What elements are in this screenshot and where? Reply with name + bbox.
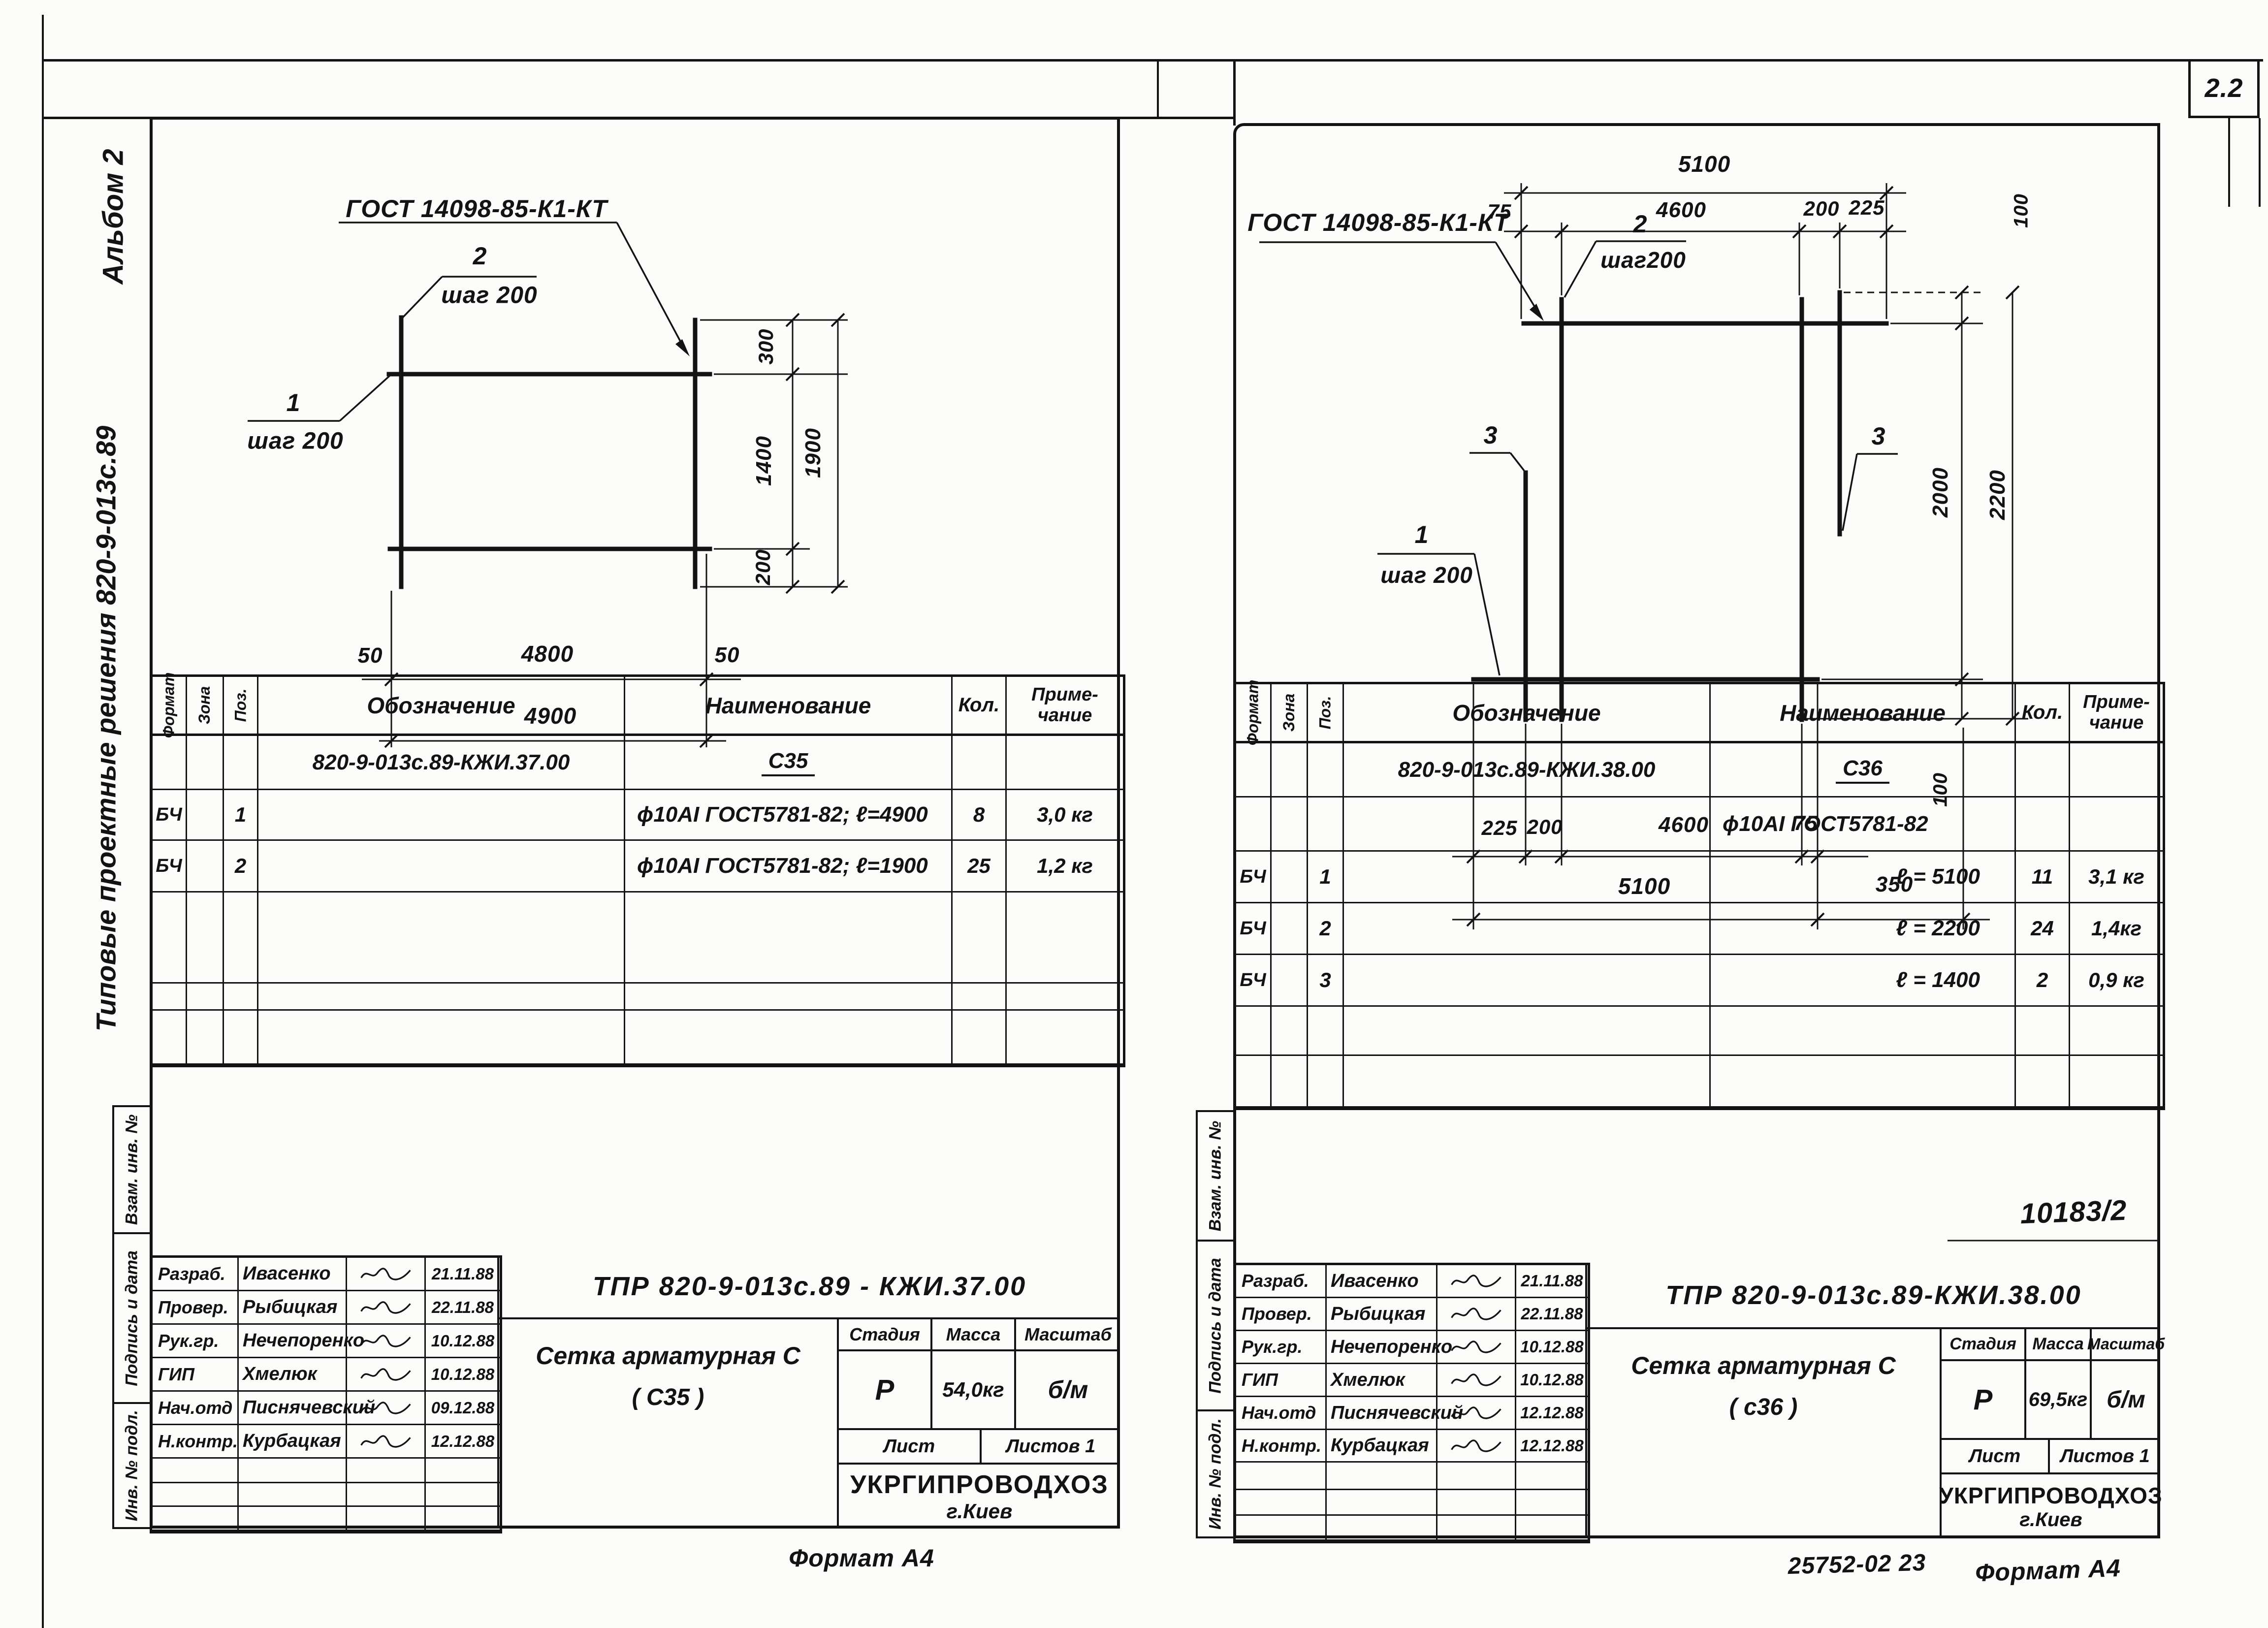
mass-header-right: Масса [2024,1329,2090,1361]
dimension-label: 1900 [801,428,826,478]
spec-row: БЧ1ϕ10АI ГОСТ5781-82; ℓ=490083,0 кг [152,790,1123,841]
spec-cell-qty [2016,1056,2070,1108]
spec-cell-format [1236,1007,1272,1056]
spec-row [152,984,1123,1011]
format-note-left: Формат А4 [789,1544,934,1572]
spec-row: БЧ1ℓ = 5100113,1 кг [1236,852,2163,903]
spec-cell-note: 1,2 кг [1007,841,1123,893]
sig-cell-date: 22.11.88 [426,1291,500,1325]
sig-cell-signature [347,1507,426,1531]
spec-header-format: Формат [1236,684,1272,743]
spec-cell-pos [224,893,258,984]
spec-cell-zone [187,790,224,841]
spec-cell-note [2070,1007,2163,1056]
sig-cell-signature [1437,1298,1516,1331]
spec-cell-format [1236,743,1272,798]
spec-header-designation: Обозначение [258,677,625,736]
sig-cell-role [1236,1516,1327,1541]
sig-cell-name: Ивасенко [1327,1265,1437,1298]
spec-cell-name: С35 [625,736,953,790]
dimension-label: 1 [1415,520,1429,549]
mass-value-left: 54,0кг [930,1351,1014,1430]
spec-cell-format: БЧ [1236,852,1272,903]
spec-header-note: Приме-чание [1007,677,1123,736]
dimension-label: 1 [287,388,301,417]
spec-cell-qty: 2 [2016,955,2070,1007]
spec-cell-name: С36 [1711,743,2016,798]
title-cell-left: Сетка арматурная С ( С35 ) [497,1319,837,1529]
scale-value-right: б/м [2090,1361,2160,1440]
spec-cell-note [2070,743,2163,798]
signature-row: Н.контр.Курбацкая12.12.88 [152,1425,500,1459]
spec-cell-pos [224,736,258,790]
dimension-label: 3 [1484,421,1498,449]
sig-cell-role [1236,1490,1327,1516]
sig-cell-signature [347,1425,426,1459]
spec-cell-name: ϕ10АI ГОСТ5781-82; ℓ=4900 [625,790,953,841]
spec-cell-designation: 820-9-013с.89-КЖИ.38.00 [1344,743,1711,798]
sig-cell-role: Рук.гр. [1236,1331,1327,1364]
spec-row [152,1011,1123,1065]
sig-cell-role: Провер. [1236,1298,1327,1331]
dimension-label: 3 [1872,422,1886,450]
dimension-label: 200 [1803,197,1839,221]
dimension-label: 50 [358,643,383,668]
spec-cell-note: 3,0 кг [1007,790,1123,841]
sig-cell-role: Н.контр. [152,1425,239,1459]
signature-squiggle [1448,1403,1504,1423]
signature-row: Рук.гр.Нечепоренко10.12.88 [1236,1331,1588,1364]
spec-cell-designation [258,1011,625,1065]
spec-cell-pos [224,1011,258,1065]
signature-row: Провер.Рыбицкая22.11.88 [1236,1298,1588,1331]
spec-cell-note: 3,1 кг [2070,852,2163,903]
spec-cell-designation [258,790,625,841]
dimension-label: 100 [2011,193,2033,228]
dimension-label: шаг 200 [1380,562,1473,588]
spec-cell-zone [1272,955,1308,1007]
drawing-title-line1: Сетка арматурная С [536,1341,800,1370]
right-spec-table: ФорматЗонаПоз.ОбозначениеНаименованиеКол… [1233,682,2165,1110]
spec-cell-pos [1308,1007,1344,1056]
dimension-label: шаг 200 [441,282,537,309]
signature-squiggle [357,1264,414,1284]
signature-squiggle [1448,1304,1504,1324]
sig-cell-role: Нач.отд [1236,1397,1327,1430]
doc-number-cell-left: ТПР 820-9-013с.89 - КЖИ.37.00 [497,1255,1120,1319]
spec-cell-qty [953,1011,1007,1065]
spec-header-qty: Кол. [953,677,1007,736]
sig-cell-date [1516,1463,1588,1490]
spec-cell-designation [1344,1007,1711,1056]
dimension-label: 1400 [752,436,776,486]
sig-cell-name [1327,1516,1437,1541]
sig-cell-date: 21.11.88 [1516,1265,1588,1298]
sig-cell-date [426,1459,500,1483]
signature-squiggle [357,1398,414,1418]
org-cell-right: УКРГИПРОВОДХОЗ г.Киев [1940,1474,2160,1538]
org-city: г.Киев [947,1500,1013,1523]
sig-cell-date [1516,1516,1588,1541]
mass-header-left: Масса [930,1319,1014,1351]
sig-cell-role [152,1459,239,1483]
spec-cell-note [1007,1011,1123,1065]
doc-number: ТПР 820-9-013с.89-КЖИ.38.00 [1665,1280,2081,1310]
signature-row [152,1483,500,1507]
spec-cell-qty: 24 [2016,903,2070,955]
spec-cell-qty: 11 [2016,852,2070,903]
spec-cell-pos [1308,1056,1344,1108]
sig-cell-signature [1437,1364,1516,1397]
spec-cell-note [2070,798,2163,852]
spec-cell-zone [187,984,224,1011]
spec-cell-pos [224,984,258,1011]
doc-number: ТПР 820-9-013с.89 - КЖИ.37.00 [593,1271,1026,1302]
spec-cell-zone [1272,743,1308,798]
doc-number-cell-right: ТПР 820-9-013с.89-КЖИ.38.00 [1585,1263,2160,1329]
sig-cell-date: 12.12.88 [1516,1397,1588,1430]
lists-cell-right: Листов 1 [2048,1440,2160,1474]
spec-cell-pos: 1 [1308,852,1344,903]
dimension-label: 2 [473,242,487,270]
stage-header-right: Стадия [1940,1329,2024,1361]
sig-cell-date [426,1507,500,1531]
footer-doc-code: 25752-02 23 [1788,1549,1926,1580]
spec-cell-designation [1344,955,1711,1007]
sig-cell-name [1327,1463,1437,1490]
sig-cell-date: 21.11.88 [426,1258,500,1291]
spec-cell-format: БЧ [152,790,187,841]
sig-cell-signature [347,1459,426,1483]
signature-row [1236,1490,1588,1516]
sig-cell-name: Писнячевский [239,1392,347,1425]
spec-cell-format: БЧ [152,841,187,893]
spec-cell-name: ϕ10АI ГОСТ5781-82; ℓ=1900 [625,841,953,893]
spec-cell-designation [1344,1056,1711,1108]
sig-cell-name [239,1507,347,1531]
sig-cell-name [1327,1490,1437,1516]
dimension-label: 300 [754,328,778,364]
spec-row: 820-9-013с.89-КЖИ.38.00С36 [1236,743,2163,798]
spec-cell-note [1007,893,1123,984]
spec-cell-zone [187,1011,224,1065]
spec-cell-pos: 2 [1308,903,1344,955]
sig-cell-signature [347,1291,426,1325]
sig-cell-date: 10.12.88 [426,1358,500,1392]
sig-cell-role: Н.контр. [1236,1430,1327,1463]
spec-cell-designation [1344,852,1711,903]
spec-header-note: Приме-чание [2070,684,2163,743]
spec-cell-name: ℓ = 5100 [1711,852,2016,903]
signature-row: Нач.отдПиснячевский12.12.88 [1236,1397,1588,1430]
sig-cell-date: 22.11.88 [1516,1298,1588,1331]
spec-cell-note [2070,1056,2163,1108]
spec-header-name: Наименование [625,677,953,736]
spec-cell-name: ℓ = 1400 [1711,955,2016,1007]
stage-header-left: Стадия [837,1319,930,1351]
signature-row [152,1459,500,1483]
spec-header-format: Формат [152,677,187,736]
spec-cell-qty [953,893,1007,984]
sig-cell-name: Нечепоренко [1327,1331,1437,1364]
sig-cell-date: 12.12.88 [1516,1430,1588,1463]
spec-cell-zone [187,736,224,790]
title-cell-right: Сетка арматурная С ( с36 ) [1585,1329,1940,1538]
org-name: УКРГИПРОВОДХОЗ [1939,1482,2163,1509]
drawing-title-line1: Сетка арматурная С [1631,1351,1896,1380]
spec-cell-qty [2016,798,2070,852]
stage-value-left: Р [837,1351,930,1430]
spec-row: 820-9-013с.89-КЖИ.37.00С35 [152,736,1123,790]
dimension-label: 4800 [521,640,574,667]
spec-cell-qty [2016,743,2070,798]
sig-cell-signature [347,1392,426,1425]
spec-cell-pos [1308,798,1344,852]
sig-cell-signature [1437,1430,1516,1463]
dimension-label: 4600 [1656,198,1706,223]
signature-squiggle [357,1298,414,1317]
sig-cell-role: Разраб. [1236,1265,1327,1298]
sig-cell-role: Провер. [152,1291,239,1325]
sig-cell-role [152,1507,239,1531]
dimension-label: 225 [1849,196,1885,220]
spec-cell-designation [1344,903,1711,955]
spec-header-pos: Поз. [224,677,258,736]
org-city: г.Киев [2019,1509,2082,1531]
sig-cell-name [239,1483,347,1507]
signature-row [1236,1463,1588,1490]
spec-cell-zone [187,893,224,984]
spec-row: ϕ10АI ГОСТ5781-82 [1236,798,2163,852]
scale-header-left: Масштаб [1014,1319,1120,1351]
sig-cell-name [239,1459,347,1483]
left-signature-table: Разраб.Ивасенко21.11.88Провер.Рыбицкая22… [150,1255,502,1533]
sig-cell-date: 10.12.88 [426,1325,500,1358]
spec-cell-format [152,893,187,984]
sig-cell-signature [1437,1516,1516,1541]
spec-cell-name [1711,1007,2016,1056]
sig-cell-signature [1437,1397,1516,1430]
org-name: УКРГИПРОВОДХОЗ [850,1470,1109,1500]
sig-cell-name: Нечепоренко [239,1325,347,1358]
sig-cell-date: 09.12.88 [426,1392,500,1425]
spec-cell-designation [258,893,625,984]
spec-header-zone: Зона [187,677,224,736]
scale-header-right: Масштаб [2090,1329,2160,1361]
spec-cell-name [1711,1056,2016,1108]
sig-cell-name: Хмелюк [1327,1364,1437,1397]
sig-cell-name: Курбацкая [239,1425,347,1459]
spec-cell-qty [953,736,1007,790]
list-cell-right: Лист [1940,1440,2048,1474]
sig-cell-date: 10.12.88 [1516,1331,1588,1364]
spec-header-designation: Обозначение [1344,684,1711,743]
signature-squiggle [357,1432,414,1451]
sig-cell-name: Писнячевский [1327,1397,1437,1430]
spec-row [152,893,1123,984]
sig-cell-name: Хмелюк [239,1358,347,1392]
spec-cell-name: ϕ10АI ГОСТ5781-82 [1711,798,2016,852]
scale-value-left: б/м [1014,1351,1120,1430]
signature-row [1236,1516,1588,1541]
sig-cell-signature [347,1483,426,1507]
sig-cell-name: Рыбицкая [239,1291,347,1325]
org-cell-left: УКРГИПРОВОДХОЗ г.Киев [837,1465,1120,1529]
signature-squiggle [1448,1370,1504,1390]
spec-row: БЧ3ℓ = 140020,9 кг [1236,955,2163,1007]
spec-cell-name [625,893,953,984]
spec-cell-qty [953,984,1007,1011]
spec-cell-format [152,984,187,1011]
spec-cell-pos [1308,743,1344,798]
dimension-label: 75 [1488,200,1512,223]
drawing-title-line2: ( С35 ) [536,1384,800,1411]
signature-row: Провер.Рыбицкая22.11.88 [152,1291,500,1325]
lists-cell-left: Листов 1 [980,1430,1120,1465]
signature-row: ГИПХмелюк10.12.88 [152,1358,500,1392]
sig-cell-role: Нач.отд [152,1392,239,1425]
spec-cell-format: БЧ [1236,955,1272,1007]
spec-header-zone: Зона [1272,684,1308,743]
dimension-label: 50 [715,643,740,668]
sig-cell-date [426,1483,500,1507]
spec-cell-pos: 1 [224,790,258,841]
signature-row: Разраб.Ивасенко21.11.88 [1236,1265,1588,1298]
spec-cell-format [152,736,187,790]
sig-cell-date [1516,1490,1588,1516]
sig-cell-signature [1437,1265,1516,1298]
spec-cell-zone [1272,903,1308,955]
left-spec-table: ФорматЗонаПоз.ОбозначениеНаименованиеКол… [150,674,1125,1067]
sig-cell-signature [1437,1331,1516,1364]
format-note-right: Формат А4 [1975,1554,2121,1587]
sig-cell-role [1236,1463,1327,1490]
sig-cell-name: Курбацкая [1327,1430,1437,1463]
spec-cell-designation [258,984,625,1011]
spec-cell-designation: 820-9-013с.89-КЖИ.37.00 [258,736,625,790]
right-signature-table: Разраб.Ивасенко21.11.88Провер.Рыбицкая22… [1233,1263,1590,1543]
dimension-label: 200 [751,549,775,585]
spec-cell-pos: 2 [224,841,258,893]
spec-row [1236,1056,2163,1108]
dimension-label: 2 [1633,210,1648,238]
signature-squiggle [1448,1337,1504,1357]
signature-row [152,1507,500,1531]
list-cell-left: Лист [837,1430,980,1465]
spec-cell-qty: 8 [953,790,1007,841]
sig-cell-date: 10.12.88 [1516,1364,1588,1397]
dimension-label: ГОСТ 14098-85-К1-КТ [1247,208,1509,237]
spec-cell-name [625,984,953,1011]
dimension-label: 2000 [1928,467,1953,517]
spec-cell-zone [1272,852,1308,903]
spec-cell-format [1236,1056,1272,1108]
spec-cell-note: 0,9 кг [2070,955,2163,1007]
signature-row: Рук.гр.Нечепоренко10.12.88 [152,1325,500,1358]
sig-cell-signature [1437,1490,1516,1516]
sig-cell-role [152,1483,239,1507]
dimension-label: 2200 [1985,470,2010,520]
sig-cell-signature [347,1258,426,1291]
spec-cell-zone [187,841,224,893]
spec-cell-note [1007,736,1123,790]
sig-cell-role: Рук.гр. [152,1325,239,1358]
spec-cell-note [1007,984,1123,1011]
spec-cell-qty [2016,1007,2070,1056]
dimension-label: 5100 [1678,151,1730,177]
dimension-label: шаг 200 [247,428,343,455]
spec-cell-designation [258,841,625,893]
signature-squiggle [357,1331,414,1351]
spec-header-name: Наименование [1711,684,2016,743]
sig-cell-role: ГИП [152,1358,239,1392]
spec-cell-name: ℓ = 2200 [1711,903,2016,955]
spec-row: БЧ2ℓ = 2200241,4кг [1236,903,2163,955]
sig-cell-date: 12.12.88 [426,1425,500,1459]
spec-row: БЧ2ϕ10АI ГОСТ5781-82; ℓ=1900251,2 кг [152,841,1123,893]
sig-cell-signature [1437,1463,1516,1490]
signature-row: Н.контр.Курбацкая12.12.88 [1236,1430,1588,1463]
spec-cell-format [152,1011,187,1065]
sig-cell-signature [347,1325,426,1358]
sig-cell-role: ГИП [1236,1364,1327,1397]
sig-cell-name: Ивасенко [239,1258,347,1291]
mass-value-right: 69,5кг [2024,1361,2090,1440]
scanned-drawing-album-page: 2.2 Альбом 2 Типовые проектные решения 8… [0,0,2268,1628]
spec-cell-format [1236,798,1272,852]
spec-cell-zone [1272,1056,1308,1108]
signature-squiggle [357,1365,414,1384]
spec-cell-zone [1272,798,1308,852]
signature-row: Разраб.Ивасенко21.11.88 [152,1258,500,1291]
spec-cell-zone [1272,1007,1308,1056]
spec-cell-designation [1344,798,1711,852]
sig-cell-name: Рыбицкая [1327,1298,1437,1331]
inventory-stamp-number: 10183/2 [2020,1194,2128,1231]
signature-squiggle [1448,1271,1504,1291]
spec-cell-qty: 25 [953,841,1007,893]
spec-cell-name [625,1011,953,1065]
spec-cell-format: БЧ [1236,903,1272,955]
stage-value-right: Р [1940,1361,2024,1440]
spec-header-qty: Кол. [2016,684,2070,743]
spec-cell-pos: 3 [1308,955,1344,1007]
spec-header-pos: Поз. [1308,684,1344,743]
spec-row [1236,1007,2163,1056]
dimension-label: шаг200 [1600,247,1686,273]
dimension-label: ГОСТ 14098-85-К1-КТ [346,194,607,223]
spec-cell-note: 1,4кг [2070,903,2163,955]
sig-cell-signature [347,1358,426,1392]
signature-squiggle [1448,1436,1504,1456]
signature-row: Нач.отдПиснячевский09.12.88 [152,1392,500,1425]
sig-cell-role: Разраб. [152,1258,239,1291]
signature-row: ГИПХмелюк10.12.88 [1236,1364,1588,1397]
drawing-title-line2: ( с36 ) [1631,1394,1896,1421]
